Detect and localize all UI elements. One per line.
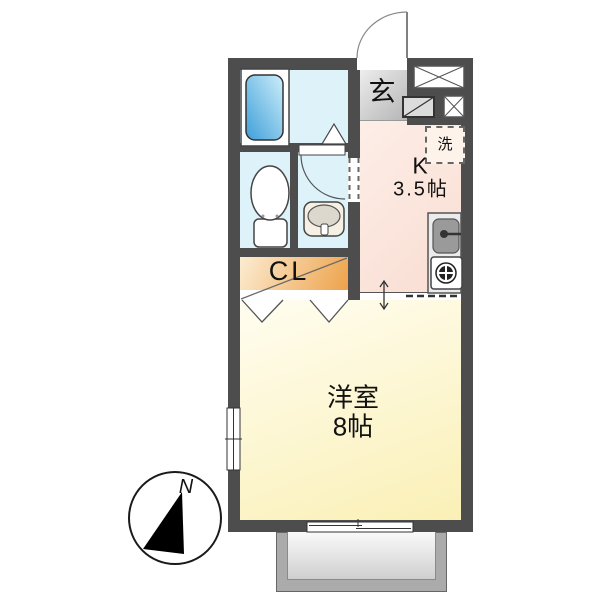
- laundry-label: 洗: [437, 137, 452, 154]
- western-room-name: 洋室: [327, 383, 379, 412]
- closet-label: CL: [269, 257, 310, 287]
- closet-door-track: [240, 290, 348, 300]
- balcony-floor: [287, 532, 436, 580]
- entrance-kitchen-step-line: [357, 120, 407, 121]
- wall-bottom: [228, 520, 473, 532]
- kitchen-label-k: K: [393, 153, 449, 178]
- kitchen-room-opening: [360, 292, 461, 300]
- wall-left: [228, 58, 240, 532]
- western-room-label: 洋室 8帖: [327, 383, 379, 440]
- compass: [129, 472, 221, 564]
- wall-mid-vertical: [348, 70, 360, 300]
- north-needle: [143, 492, 184, 554]
- north-label: N: [179, 476, 193, 498]
- entrance-door: [357, 12, 407, 58]
- floor-plan: 玄 洗 K 3.5帖 CL 洋室 8帖 N: [0, 0, 600, 600]
- wall-bath-bottom: [240, 143, 348, 152]
- kitchen-label-size: 3.5帖: [393, 179, 449, 201]
- wall-toilet-washroom: [290, 152, 298, 248]
- western-room-size: 8帖: [327, 412, 379, 441]
- wall-top-left: [228, 58, 357, 70]
- entrance-label: 玄: [369, 78, 396, 108]
- kitchen-label: K 3.5帖: [393, 153, 449, 200]
- entrance-door-threshold: [357, 58, 407, 70]
